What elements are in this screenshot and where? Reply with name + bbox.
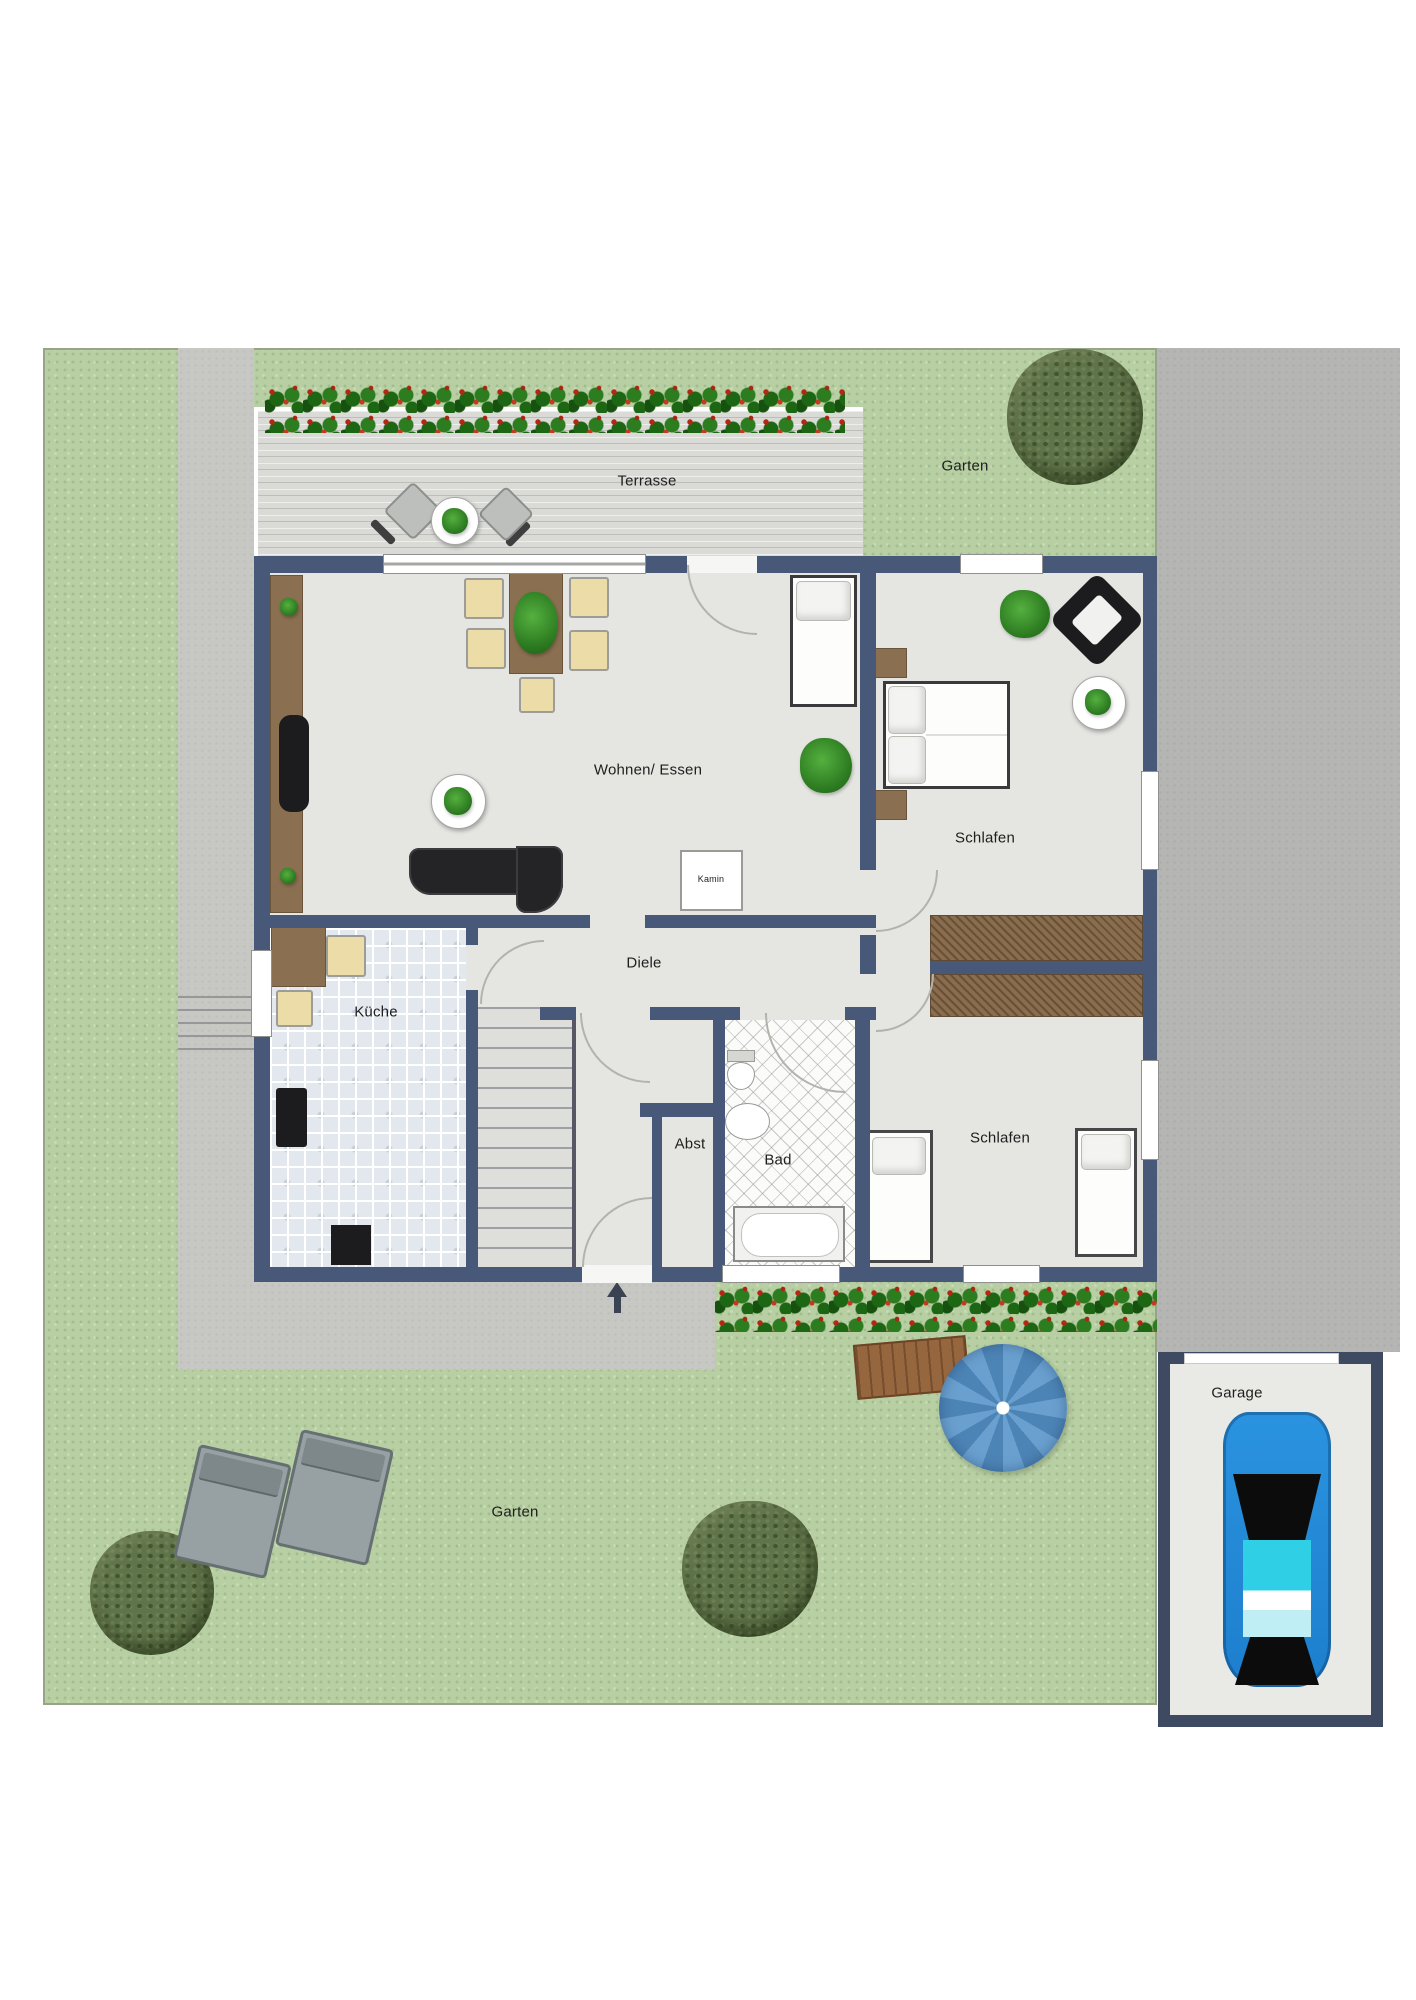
window-bath-south [722, 1265, 840, 1283]
wall-top-1 [254, 556, 383, 573]
dining-chair-1 [464, 578, 504, 619]
window-bedroom-top-east [1141, 771, 1159, 870]
wall-kitchen-right [466, 990, 478, 1267]
kitchen-mat [331, 1225, 371, 1265]
exterior-steps [178, 996, 254, 1060]
wall-top-2 [646, 556, 687, 573]
wall-right-2 [1143, 870, 1157, 1060]
stove [276, 1088, 307, 1147]
wall-storage-stub-h [640, 1103, 713, 1117]
wall-right-3 [1143, 1160, 1157, 1282]
driveway [1157, 348, 1400, 1352]
bistro-table-plant [442, 508, 468, 534]
door-entrance [582, 1265, 652, 1283]
bathtub [733, 1206, 845, 1262]
wall-hall-south-3 [845, 1007, 876, 1020]
wardrobe-bedroom-bottom [930, 974, 1143, 1017]
flower-hedge-top [265, 383, 845, 433]
arrow-head [607, 1282, 627, 1297]
wall-left-1 [254, 556, 270, 950]
wall-living-hall-2 [645, 915, 876, 928]
armchair-cushion [1071, 594, 1123, 646]
dining-chair-4 [569, 630, 609, 671]
daybed [790, 575, 857, 707]
wall-bedroom-top-left-2 [860, 935, 876, 974]
garage-label: Garage [1211, 1385, 1262, 1402]
wardrobe-bedroom-top [930, 915, 1143, 961]
staircase [478, 1007, 576, 1267]
car-roof [1243, 1540, 1311, 1637]
room-label-bedroom-top: Schlafen [955, 830, 1015, 847]
daybed-pillow [796, 581, 851, 621]
sink [725, 1103, 770, 1140]
tree-garden-top [1007, 349, 1143, 485]
bathtub-basin [741, 1213, 839, 1257]
window-bedroom-top-north [960, 554, 1043, 574]
wall-living-hall-1 [270, 915, 590, 928]
car [1223, 1412, 1331, 1687]
wall-kitchen-jamb [466, 928, 478, 945]
duvet-split [926, 734, 1007, 736]
wall-bottom-2 [652, 1267, 722, 1282]
double-bed-pillow-2 [888, 736, 926, 784]
room-label-bath: Bad [764, 1152, 791, 1169]
dining-chair-3 [466, 628, 506, 669]
wall-bath-bedroom [855, 1020, 870, 1267]
side-table-plant [1085, 689, 1111, 715]
wall-top-4 [1043, 556, 1157, 573]
dining-chair-2 [569, 577, 609, 618]
wall-storage-bath [713, 1020, 725, 1267]
garden-label-bottom: Garten [491, 1504, 538, 1521]
living-room-plant [800, 738, 852, 793]
wall-top-3 [757, 556, 960, 573]
wall-storage-stub-v [652, 1117, 662, 1267]
single-bed-2-pillow [1081, 1134, 1131, 1170]
wall-hall-south-2 [650, 1007, 740, 1020]
room-label-terrace: Terrasse [617, 473, 676, 490]
entrance-apron [178, 1282, 715, 1370]
kitchen-chair-2 [276, 990, 313, 1027]
bedroom-plant [1000, 590, 1050, 638]
room-label-living: Wohnen/ Essen [594, 762, 702, 779]
window-terrace-slider [383, 554, 646, 574]
coffee-table-plant [444, 787, 472, 815]
fireplace-label: Kamin [698, 874, 725, 884]
dining-table-plant [514, 592, 558, 654]
sideboard-plant-2 [280, 868, 296, 884]
parasol [939, 1344, 1067, 1472]
tree-garden-center [682, 1501, 818, 1637]
footpath [178, 348, 254, 1370]
wall-bedroom-top-left-1 [860, 573, 876, 870]
garden-label-top: Garten [941, 458, 988, 475]
window-bedroom-bottom-south [963, 1265, 1040, 1283]
double-bed [883, 681, 1010, 789]
room-label-hall: Diele [626, 955, 661, 972]
flower-hedge-bottom [715, 1284, 1157, 1332]
wall-bedrooms-divider [930, 961, 1143, 974]
room-label-bedroom-bottom: Schlafen [970, 1130, 1030, 1147]
kitchen-chair-1 [326, 935, 366, 977]
garage-door [1184, 1353, 1339, 1364]
wall-bottom-3 [840, 1267, 963, 1282]
wall-hall-south-1 [540, 1007, 576, 1020]
arrow-stem [614, 1297, 621, 1313]
entrance-arrow-icon [607, 1282, 629, 1316]
room-label-kitchen: Küche [354, 1004, 398, 1021]
tv-lowboard [279, 715, 309, 812]
wall-right-1 [1143, 556, 1157, 771]
double-bed-pillow-1 [888, 686, 926, 734]
sideboard-plant-1 [280, 598, 298, 616]
wall-bottom-4 [1040, 1267, 1157, 1282]
window-kitchen-west [251, 950, 272, 1037]
nightstand-1 [875, 648, 907, 678]
floorplan-page: Kamin Terrass [0, 0, 1416, 2000]
single-bed-1 [865, 1130, 933, 1263]
room-label-storage: Abst [675, 1136, 706, 1153]
single-bed-1-pillow [872, 1137, 926, 1175]
wall-bottom-1 [254, 1267, 582, 1282]
single-bed-2 [1075, 1128, 1137, 1257]
kitchen-table [271, 927, 326, 987]
nightstand-2 [875, 790, 907, 820]
wall-left-2 [254, 1037, 270, 1282]
dining-chair-5 [519, 677, 555, 713]
window-bedroom-bottom-east [1141, 1060, 1159, 1160]
toilet [727, 1050, 755, 1062]
